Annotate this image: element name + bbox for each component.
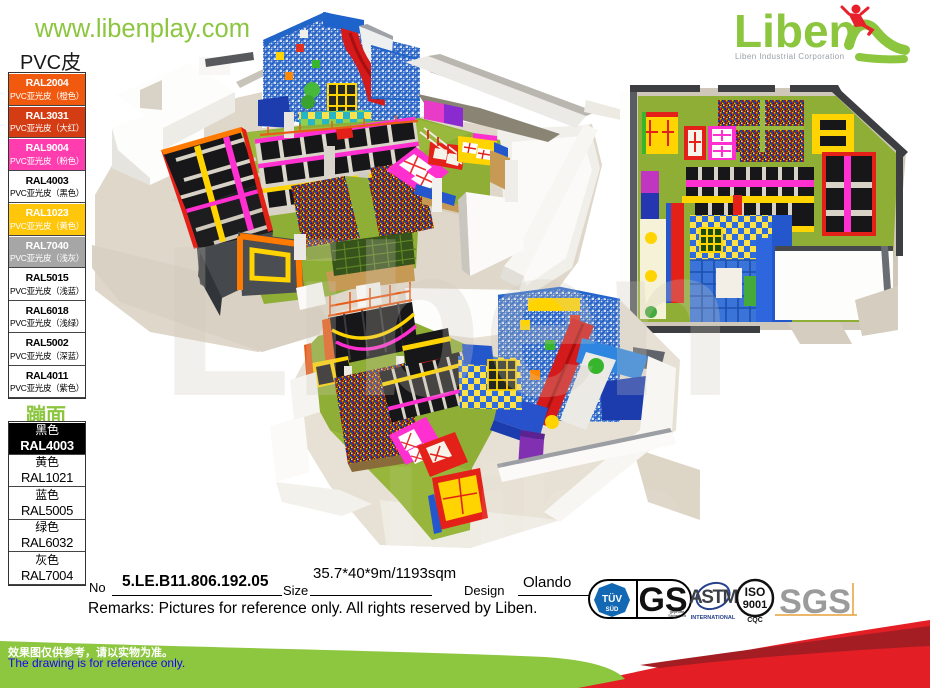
- svg-text:Liben: Liben: [160, 200, 733, 441]
- svg-text:ASTM: ASTM: [689, 587, 738, 608]
- svg-text:Liben: Liben: [734, 5, 857, 57]
- svg-text:ISO: ISO: [745, 585, 766, 599]
- svg-text:TÜV: TÜV: [602, 592, 622, 605]
- svg-text:Liben Industrial Corporation: Liben Industrial Corporation: [735, 52, 844, 61]
